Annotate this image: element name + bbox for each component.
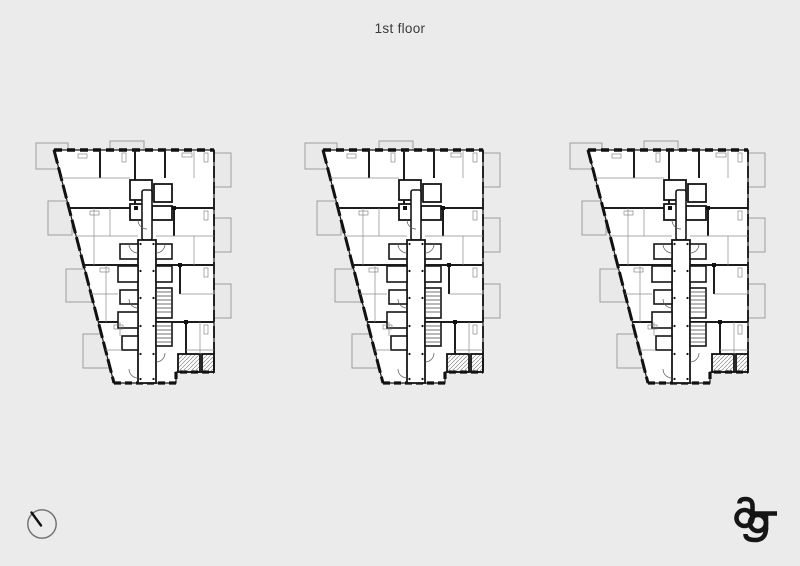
north-arrow-icon xyxy=(24,506,60,542)
floor-plan-2 xyxy=(303,140,503,390)
floor-plan-3 xyxy=(568,140,768,390)
page-title: 1st floor xyxy=(0,21,800,36)
floor-plan-drawing xyxy=(34,140,234,390)
ag-logo-icon xyxy=(730,492,780,548)
floor-plan-drawing xyxy=(303,140,503,390)
floor-plan-1 xyxy=(34,140,234,390)
floor-plan-drawing xyxy=(568,140,768,390)
drawing-sheet: 1st floor xyxy=(0,0,800,566)
